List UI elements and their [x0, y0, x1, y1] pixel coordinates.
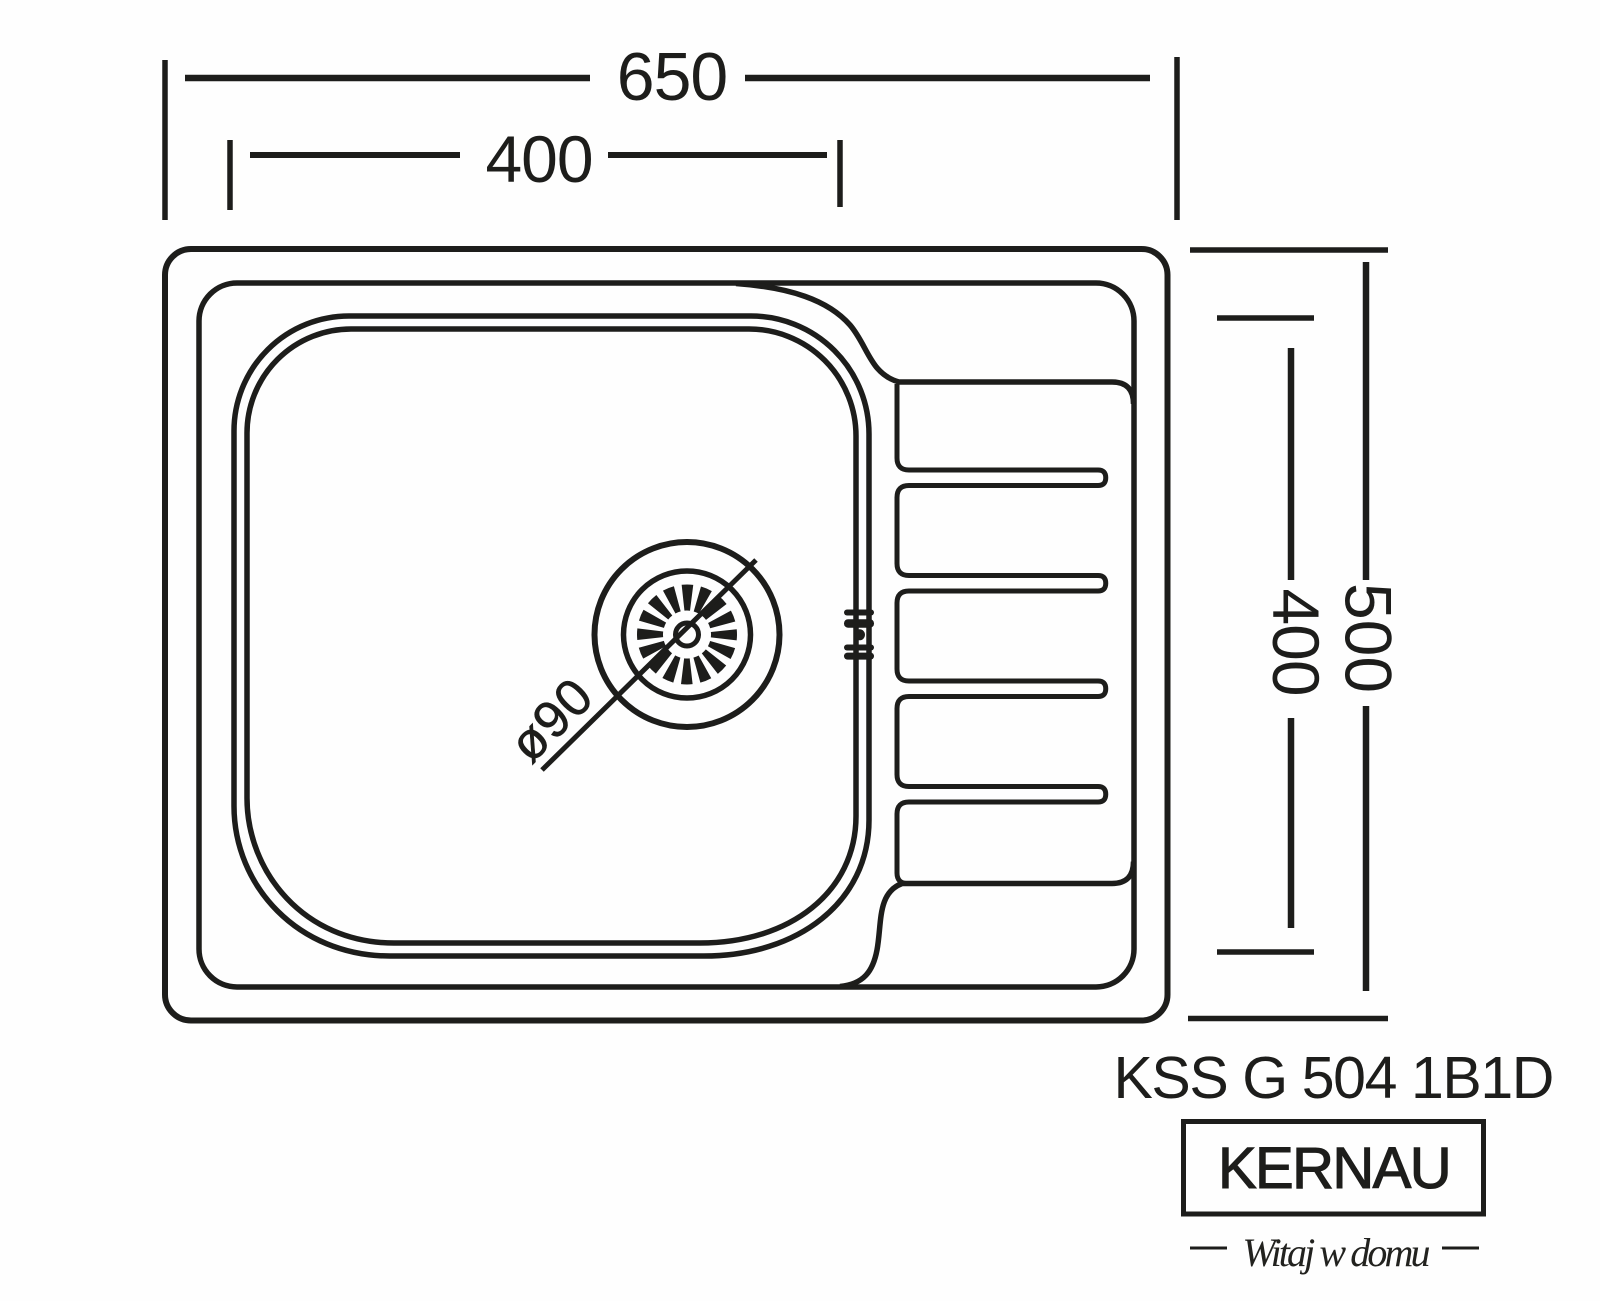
- svg-text:500: 500: [1332, 583, 1406, 693]
- svg-text:Witaj w domu: Witaj w domu: [1242, 1230, 1429, 1275]
- svg-text:KSS G 504 1B1D: KSS G 504 1B1D: [1113, 1045, 1553, 1111]
- svg-text:650: 650: [617, 39, 727, 115]
- svg-text:400: 400: [1259, 588, 1333, 695]
- svg-text:KERNAU: KERNAU: [1218, 1136, 1450, 1201]
- svg-text:400: 400: [485, 122, 592, 196]
